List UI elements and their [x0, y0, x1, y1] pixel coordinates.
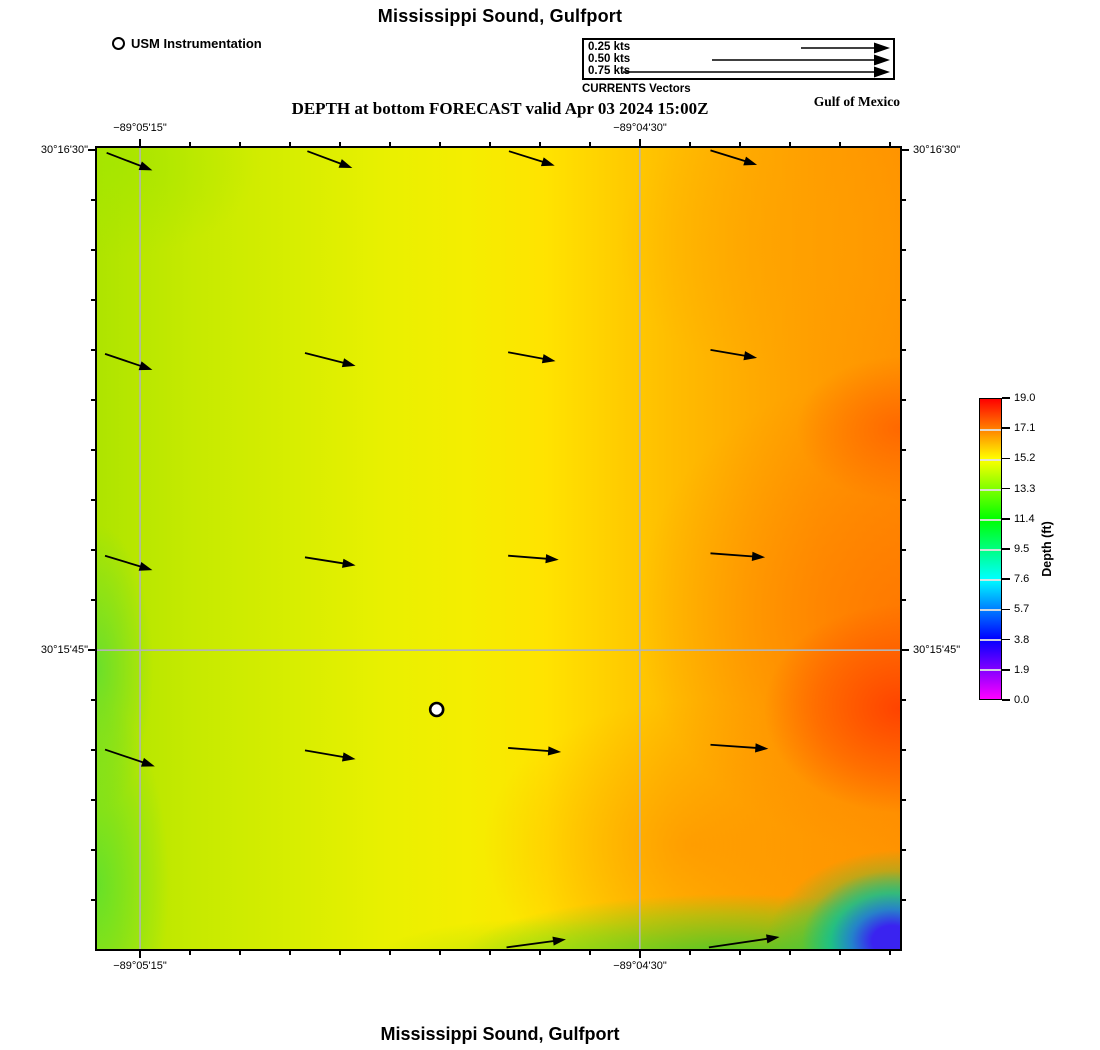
map-plot-area	[97, 148, 900, 949]
axis-label-left-lat2: 30°15'45"	[18, 644, 88, 656]
colorbar-tick-label: 1.9	[1014, 663, 1029, 677]
axis-tick	[91, 849, 97, 851]
colorbar-tick	[1002, 639, 1010, 641]
colorbar-separator	[980, 429, 1001, 431]
axis-tick	[91, 249, 97, 251]
current-vector-scale-legend: 0.25 kts 0.50 kts 0.75 kts	[582, 38, 895, 80]
axis-tick	[339, 949, 341, 955]
axis-tick	[91, 299, 97, 301]
axis-tick	[900, 449, 906, 451]
axis-tick	[900, 399, 906, 401]
axis-tick	[91, 499, 97, 501]
axis-tick	[689, 142, 691, 148]
axis-tick	[789, 142, 791, 148]
colorbar-tick-label: 15.2	[1014, 451, 1035, 465]
axis-tick	[289, 142, 291, 148]
axis-tick	[589, 142, 591, 148]
map-frame	[95, 146, 902, 951]
axis-tick	[789, 949, 791, 955]
axis-tick	[900, 149, 909, 151]
vector-scale-arrow-head	[874, 43, 890, 54]
colorbar-tick	[1002, 518, 1010, 520]
axis-tick	[689, 949, 691, 955]
forecast-plot-canvas: Mississippi Sound, Gulfport USM Instrume…	[0, 0, 1100, 1050]
station-legend: USM Instrumentation	[112, 36, 262, 51]
colorbar-tick-label: 7.6	[1014, 572, 1029, 586]
axis-tick	[139, 139, 141, 148]
colorbar-tick	[1002, 397, 1010, 399]
axis-tick	[900, 799, 906, 801]
axis-tick	[439, 949, 441, 955]
colorbar-tick	[1002, 427, 1010, 429]
axis-tick	[900, 299, 906, 301]
axis-tick	[539, 142, 541, 148]
colorbar-axis-label: Depth (ft)	[1040, 521, 1054, 577]
colorbar-tick-label: 13.3	[1014, 482, 1035, 496]
vector-scale-arrow-head	[874, 55, 890, 66]
axis-tick	[900, 899, 906, 901]
axis-tick	[900, 599, 906, 601]
axis-tick	[91, 599, 97, 601]
axis-tick	[900, 199, 906, 201]
colorbar	[979, 398, 1002, 700]
axis-label-bottom-lon2: −89°04'30"	[613, 960, 667, 972]
axis-tick	[289, 949, 291, 955]
axis-tick	[339, 142, 341, 148]
colorbar-tick	[1002, 488, 1010, 490]
axis-label-left-lat1: 30°16'30"	[18, 144, 88, 156]
plot-subtitle: DEPTH at bottom FORECAST valid Apr 03 20…	[97, 99, 903, 119]
colorbar-tick-label: 17.1	[1014, 421, 1035, 435]
axis-tick	[139, 949, 141, 958]
vector-legend-caption: CURRENTS Vectors	[582, 83, 691, 95]
colorbar-separator	[980, 579, 1001, 581]
axis-tick	[489, 142, 491, 148]
axis-tick	[91, 899, 97, 901]
colorbar-tick-label: 3.8	[1014, 633, 1029, 647]
colorbar-tick	[1002, 609, 1010, 611]
axis-tick	[91, 799, 97, 801]
axis-tick	[900, 499, 906, 501]
axis-tick	[439, 142, 441, 148]
axis-tick	[900, 549, 906, 551]
colorbar-tick	[1002, 699, 1010, 701]
axis-tick	[88, 149, 97, 151]
axis-tick	[189, 142, 191, 148]
axis-tick	[91, 449, 97, 451]
axis-tick	[639, 139, 641, 148]
colorbar-tick-label: 9.5	[1014, 542, 1029, 556]
footer-title: Mississippi Sound, Gulfport	[97, 1024, 903, 1045]
axis-tick	[239, 142, 241, 148]
colorbar-separator	[980, 639, 1001, 641]
axis-tick	[900, 699, 906, 701]
axis-tick	[589, 949, 591, 955]
axis-tick	[739, 949, 741, 955]
vector-scale-arrows	[584, 40, 893, 78]
axis-label-right-lat1: 30°16'30"	[913, 144, 960, 156]
colorbar-tick	[1002, 578, 1010, 580]
colorbar-tick	[1002, 458, 1010, 460]
axis-tick	[900, 249, 906, 251]
colorbar-tick-label: 11.4	[1014, 512, 1035, 526]
axis-tick	[539, 949, 541, 955]
colorbar-tick-label: 19.0	[1014, 391, 1035, 405]
axis-tick	[389, 142, 391, 148]
axis-label-right-lat2: 30°15'45"	[913, 644, 960, 656]
axis-tick	[889, 142, 891, 148]
plot-title: Mississippi Sound, Gulfport	[97, 6, 903, 27]
axis-tick	[91, 749, 97, 751]
colorbar-separator	[980, 669, 1001, 671]
axis-tick	[91, 549, 97, 551]
colorbar-tick	[1002, 548, 1010, 550]
colorbar-separator	[980, 489, 1001, 491]
axis-tick	[889, 949, 891, 955]
axis-label-bottom-lon1: −89°05'15"	[113, 960, 167, 972]
axis-tick	[639, 949, 641, 958]
axis-tick	[91, 349, 97, 351]
axis-tick	[88, 649, 97, 651]
axis-tick	[900, 649, 909, 651]
colorbar-tick	[1002, 669, 1010, 671]
colorbar-separator	[980, 459, 1001, 461]
axis-tick	[900, 849, 906, 851]
colorbar-tick-label: 5.7	[1014, 602, 1029, 616]
axis-tick	[91, 399, 97, 401]
axis-label-top-lon1: −89°05'15"	[113, 122, 167, 134]
axis-tick	[189, 949, 191, 955]
axis-tick	[91, 699, 97, 701]
axis-tick	[900, 349, 906, 351]
axis-tick	[91, 199, 97, 201]
axis-label-top-lon2: −89°04'30"	[613, 122, 667, 134]
colorbar-tick-label: 0.0	[1014, 693, 1029, 707]
axis-tick	[839, 949, 841, 955]
colorbar-separator	[980, 609, 1001, 611]
axis-tick	[839, 142, 841, 148]
axis-tick	[900, 749, 906, 751]
colorbar-separator	[980, 519, 1001, 521]
station-legend-label: USM Instrumentation	[131, 36, 262, 51]
axis-tick	[739, 142, 741, 148]
colorbar-separator	[980, 549, 1001, 551]
vector-scale-arrow-head	[874, 67, 890, 78]
axis-tick	[239, 949, 241, 955]
axis-tick	[489, 949, 491, 955]
axis-tick	[389, 949, 391, 955]
station-marker-legend-icon	[112, 37, 125, 50]
